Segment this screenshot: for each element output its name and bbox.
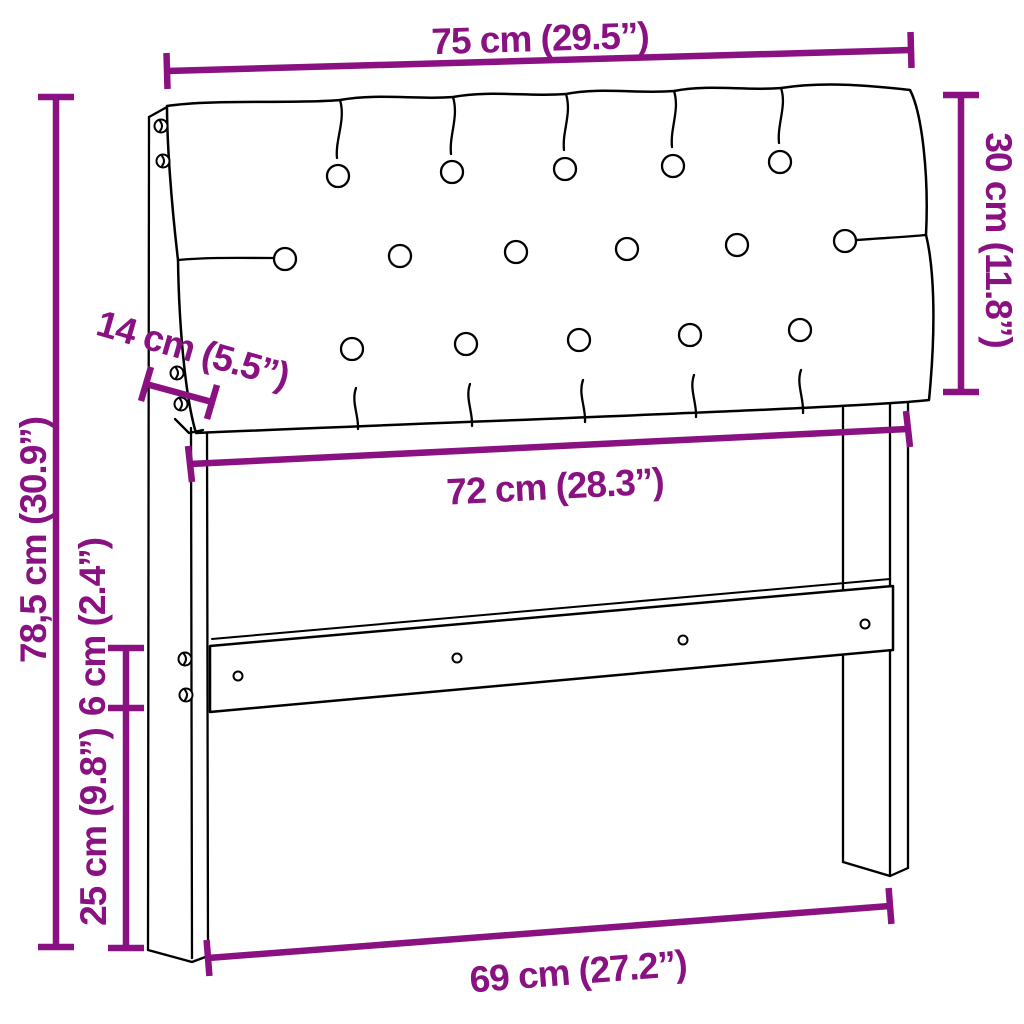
- dimension-label: 25 cm (9.8”): [73, 728, 114, 926]
- dimension-width-top: 75 cm (29.5”): [167, 15, 912, 89]
- dimension-height-lower: 25 cm (9.8”): [73, 708, 144, 948]
- dimension-cushion-height: 30 cm (11.8”): [943, 95, 1019, 392]
- screw-icon: [175, 398, 188, 411]
- dimension-label: 72 cm (28.3”): [445, 460, 664, 512]
- diagram-canvas: 75 cm (29.5”) 30 cm (11.8”) 14 cm (5.5”)…: [0, 0, 1024, 1024]
- screw-icon: [179, 653, 192, 666]
- screw-icon: [155, 120, 168, 133]
- dimension-width-bottom: 69 cm (27.2”): [207, 888, 892, 1000]
- headboard-drawing: [148, 84, 933, 962]
- screw-icon: [171, 367, 184, 380]
- dimension-label: 30 cm (11.8”): [978, 132, 1019, 347]
- screw-icon: [180, 689, 193, 702]
- cross-rail: [210, 579, 893, 712]
- dimension-label: 78,5 cm (30.9”): [13, 417, 54, 663]
- dimension-label: 75 cm (29.5”): [431, 15, 649, 62]
- dimension-label: 69 cm (27.2”): [468, 943, 688, 1001]
- dimension-height-total: 78,5 cm (30.9”): [13, 97, 74, 947]
- dimension-label: 6 cm (2.4”): [72, 538, 113, 716]
- product-diagram: 75 cm (29.5”) 30 cm (11.8”) 14 cm (5.5”)…: [0, 0, 1024, 1024]
- screw-icon: [157, 155, 170, 168]
- dimension-rail-height: 6 cm (2.4”): [72, 538, 144, 716]
